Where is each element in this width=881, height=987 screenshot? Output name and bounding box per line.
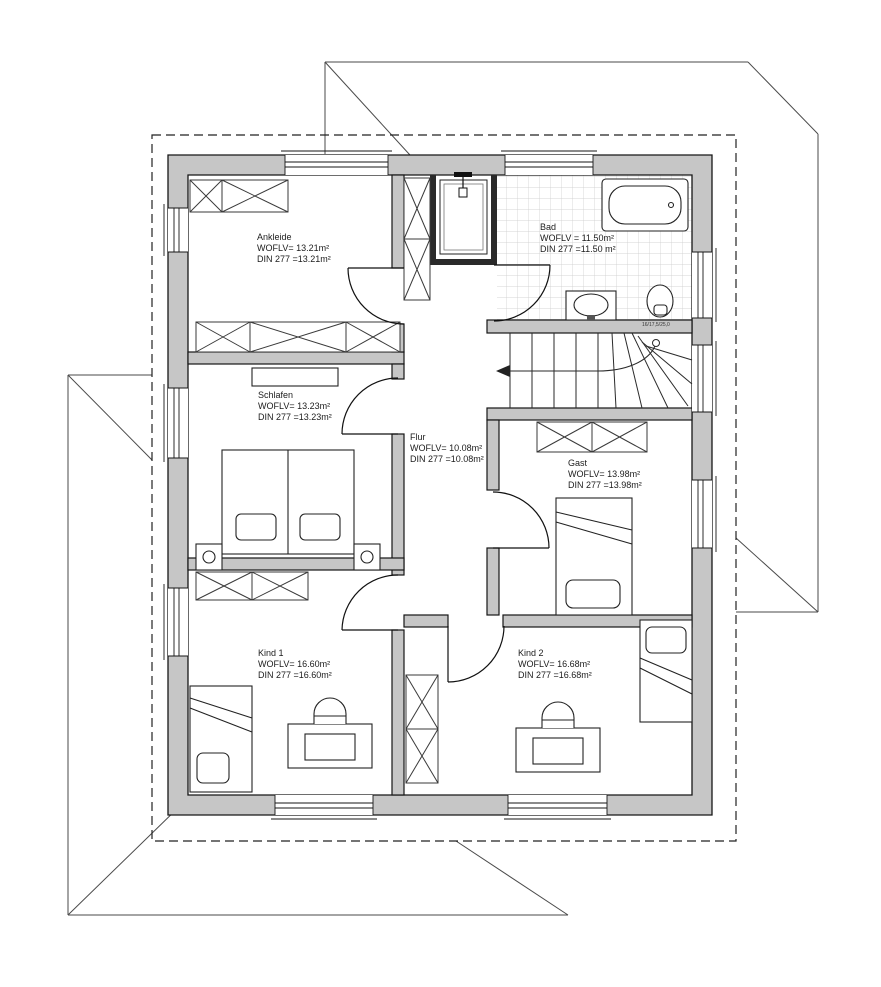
door-ankleide bbox=[348, 268, 404, 324]
room-woflv: WOFLV= 16.60m² bbox=[258, 659, 332, 670]
stair-direction-arrow bbox=[496, 365, 510, 377]
bed-schlafen bbox=[222, 450, 354, 554]
room-label-bad: Bad WOFLV = 11.50m² DIN 277 =11.50 m² bbox=[540, 222, 616, 255]
chair-kind2 bbox=[542, 702, 574, 728]
door-kind2 bbox=[448, 626, 504, 682]
stairs bbox=[496, 333, 692, 408]
room-label-kind2: Kind 2 WOFLV= 16.68m² DIN 277 =16.68m² bbox=[518, 648, 592, 681]
desk-kind2 bbox=[516, 728, 600, 772]
floor-plan-drawing bbox=[0, 0, 881, 987]
room-woflv: WOFLV= 10.08m² bbox=[410, 443, 484, 454]
stair-dimension-note: 16/17,5/25,0 bbox=[642, 322, 670, 328]
wardrobe-ankleide-north bbox=[190, 180, 288, 212]
room-name: Bad bbox=[540, 222, 616, 233]
shower bbox=[430, 172, 497, 265]
room-woflv: WOFLV= 13.98m² bbox=[568, 469, 642, 480]
floor-plan-canvas: Ankleide WOFLV= 13.21m² DIN 277 =13.21m²… bbox=[0, 0, 881, 987]
wardrobe-kind1 bbox=[196, 572, 308, 600]
wardrobe-kind2 bbox=[406, 675, 438, 783]
wardrobe-ankleide-south bbox=[196, 322, 400, 352]
room-din: DIN 277 =11.50 m² bbox=[540, 244, 616, 255]
door-schlafen bbox=[342, 378, 398, 434]
room-din: DIN 277 =13.98m² bbox=[568, 480, 642, 491]
room-woflv: WOFLV= 13.21m² bbox=[257, 243, 331, 254]
room-din: DIN 277 =13.21m² bbox=[257, 254, 331, 265]
room-woflv: WOFLV= 13.23m² bbox=[258, 401, 332, 412]
room-name: Gast bbox=[568, 458, 642, 469]
desk-kind1 bbox=[288, 724, 372, 768]
shaft-next-to-shower bbox=[404, 178, 430, 300]
room-woflv: WOFLV = 11.50m² bbox=[540, 233, 616, 244]
room-name: Flur bbox=[410, 432, 484, 443]
wardrobe-gast bbox=[537, 422, 647, 452]
door-gast bbox=[493, 492, 549, 548]
dresser-schlafen bbox=[252, 368, 338, 386]
door-kind1 bbox=[342, 575, 398, 630]
nightstand-left bbox=[196, 544, 222, 570]
room-din: DIN 277 =10.08m² bbox=[410, 454, 484, 465]
nightstand-right bbox=[354, 544, 380, 570]
toilet bbox=[647, 285, 673, 317]
room-din: DIN 277 =16.60m² bbox=[258, 670, 332, 681]
stair-walk-line-start bbox=[653, 340, 660, 347]
room-name: Ankleide bbox=[257, 232, 331, 243]
washbasin bbox=[566, 291, 616, 320]
room-label-ankleide: Ankleide WOFLV= 13.21m² DIN 277 =13.21m² bbox=[257, 232, 331, 265]
bed-kind2 bbox=[640, 620, 692, 722]
room-name: Kind 1 bbox=[258, 648, 332, 659]
room-label-flur: Flur WOFLV= 10.08m² DIN 277 =10.08m² bbox=[410, 432, 484, 465]
chair-kind1 bbox=[314, 698, 346, 724]
room-name: Kind 2 bbox=[518, 648, 592, 659]
room-din: DIN 277 =16.68m² bbox=[518, 670, 592, 681]
bed-gast bbox=[556, 498, 632, 615]
room-name: Schlafen bbox=[258, 390, 332, 401]
bed-kind1 bbox=[190, 686, 252, 792]
room-label-kind1: Kind 1 WOFLV= 16.60m² DIN 277 =16.60m² bbox=[258, 648, 332, 681]
room-label-gast: Gast WOFLV= 13.98m² DIN 277 =13.98m² bbox=[568, 458, 642, 491]
room-woflv: WOFLV= 16.68m² bbox=[518, 659, 592, 670]
room-label-schlafen: Schlafen WOFLV= 13.23m² DIN 277 =13.23m² bbox=[258, 390, 332, 423]
room-din: DIN 277 =13.23m² bbox=[258, 412, 332, 423]
